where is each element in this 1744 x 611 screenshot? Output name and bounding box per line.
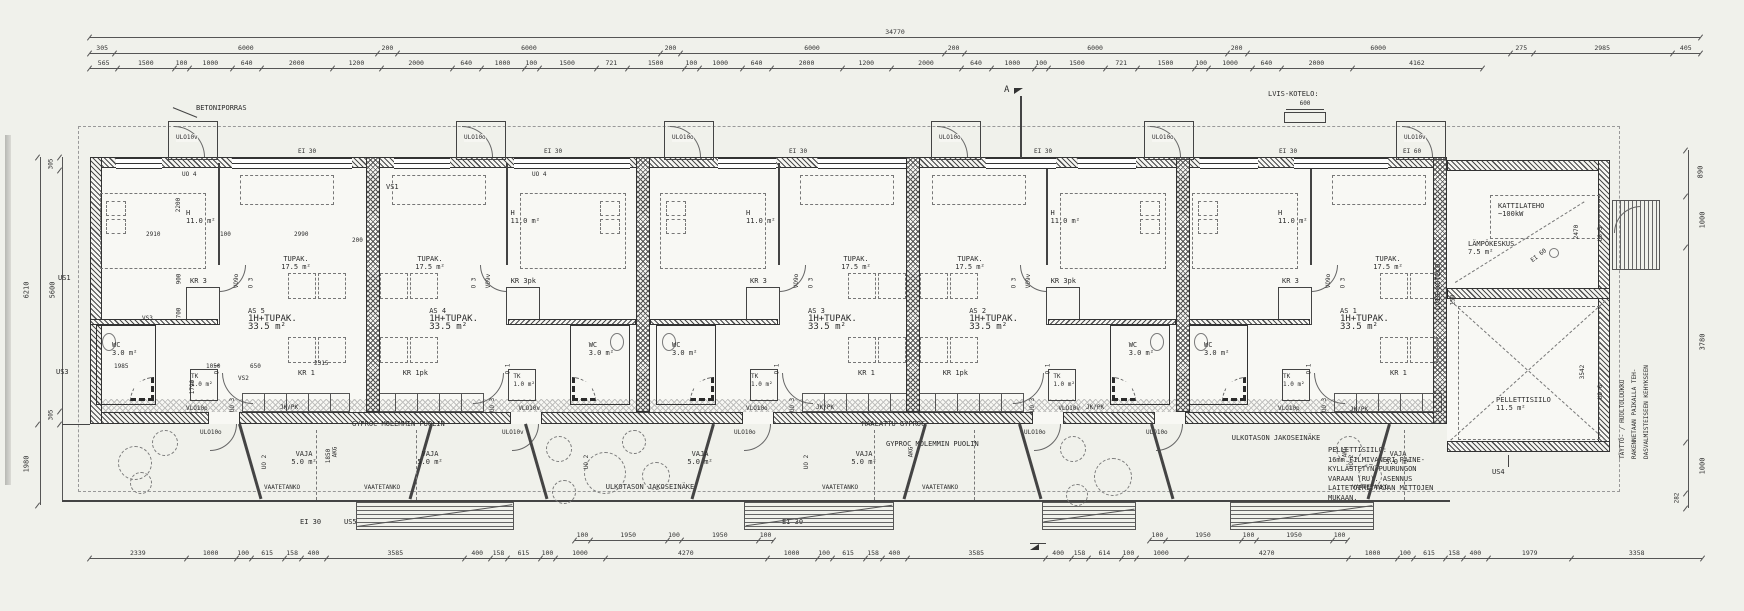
wc-area: 3.0 m² [1204,349,1229,357]
partition-wall [1310,163,1312,265]
dimension-value: 158 [490,549,507,558]
bottom-door-opening [208,412,240,424]
dimension-value: 2000 [891,59,962,68]
akg-label: AKG [331,447,339,458]
window [394,158,450,169]
apartment-id-block: AS 5 1H+TUPAK. 33.5 m² [248,307,297,331]
table-furniture [410,273,438,299]
pillow [106,201,126,216]
bedroom-door-label: VO9v [485,274,493,288]
dim-1985: 1985 [114,363,128,371]
living-area: 17.5 m² [955,263,985,271]
tick [35,502,40,508]
living-name: TUPAK. [1375,255,1400,263]
us3-label: US3 [56,368,69,376]
jk-pk-label: JK/PK [1086,404,1104,412]
living-area: 17.5 m² [1373,263,1403,271]
dimension-value: 200 [1227,44,1247,53]
bottom-door-label: ULO10o [200,429,222,437]
terrace-table [546,436,572,462]
bedroom-door-label: VO9v [1025,274,1033,288]
dimension-value: 615 [507,549,540,558]
vs2-label: VS2 [238,375,249,383]
vs3-label: VS3 [142,315,153,323]
window [1078,158,1136,169]
wc-name: WC [672,341,680,349]
wc-name: WC [589,341,597,349]
bottom-door-label: ULO10o [734,429,756,437]
dim-900: 900 [175,274,183,285]
exterior-stair [356,502,514,530]
betoniporras-leader [173,107,197,118]
left-dim-lower: 1980 [22,456,30,473]
dimension-value: 721 [596,59,628,68]
gyproc-painted-label: MAALATTU GYPROC [862,420,925,428]
bottom-door-opening [742,412,774,424]
window [514,158,630,169]
vaatetanko-rail-line [1404,430,1405,500]
terrace-table [552,480,576,504]
door-size-o3: O 3 [1339,278,1347,289]
dimension-value: 1500 [117,59,174,68]
tk-name: TK [513,373,520,380]
living-area: 17.5 m² [841,263,871,271]
uo3-label: UO 3 [489,398,497,412]
bedroom-label: H11.0 m² [186,209,216,225]
dimension-value: 158 [865,549,882,558]
dimension-value: 1000 [481,59,524,68]
wc-name: WC [1129,341,1137,349]
partition-label-2: ULKOTASON JAKOSEINÄKE [1196,434,1356,442]
dimension-value: 1950 [590,531,667,540]
bedroom-label: H11.0 m² [510,209,540,225]
dimension-value: 4162 [1352,59,1482,68]
dim-row-terrace-2: 10019501001950100 [1150,530,1347,541]
dimension-value: 200 [377,44,397,53]
exterior-stair [1042,502,1136,530]
tk-label: TK1.0 m² [1283,373,1305,389]
us5-label: US5 [344,518,357,526]
ei30-top-label: EI 30 [543,148,563,156]
tk-label: TK1.0 m² [751,373,773,389]
sofa-furniture [1332,175,1426,205]
left-dim-total: 6210 [22,282,30,299]
dimension-value: 614 [1088,549,1121,558]
sofa-furniture [240,175,334,205]
boiler-area: 7.5 m² [1468,248,1493,256]
gyproc-label-2: GYPROC MOLEMMIN PUOLIN [886,440,979,448]
dimension-value: 1000 [1136,549,1186,558]
section-line-top [1020,96,1022,158]
boiler-symbol [1549,248,1559,258]
terrace-table [130,472,152,494]
us1-label: US1 [58,274,71,282]
window [818,158,906,169]
dim-2200: 2200 [175,198,183,212]
bedroom-door-label: VO9o [233,274,241,288]
kitchen-counter [376,393,484,412]
partition-wall [507,163,509,265]
pillow [1140,201,1160,216]
table-furniture [288,273,316,299]
dimension-value: 6000 [964,44,1227,53]
dimension-value: 100 [174,59,189,68]
bedroom-label: H11.0 m² [1050,209,1080,225]
sofa-furniture [800,175,894,205]
apartment-area: 33.5 m² [429,322,467,332]
apartment-id-block: AS 1 1H+TUPAK. 33.5 m² [1340,307,1389,331]
jk-pk-label: JK/PK [1350,406,1368,414]
bottom-door-opening [1154,412,1186,424]
section-mark-top: A [1004,86,1009,94]
dimension-value: 305 [90,44,114,53]
dim-row-bottom: 2339100010061515840035854001586151001000… [90,547,1702,559]
annex-dim-3542: 3542 [1579,365,1587,379]
bottom-door-label: ULO10o [1146,429,1168,437]
wc-label: WC3.0 m² [1129,341,1154,357]
dimension-value: 640 [232,59,261,68]
left-dim-line-outer [40,157,41,505]
uo2-label: UO 2 [803,455,811,469]
wc-label: WC3.0 m² [112,341,137,357]
dimension-value: 100 [817,549,832,558]
dimension-value: 200 [944,44,964,53]
vaja-area: 5.0 m² [851,458,876,466]
table-furniture [920,273,948,299]
apartment-area: 33.5 m² [1340,322,1378,332]
dim-row-modules: 3056000200600020060002006000200600027529… [90,42,1700,54]
dimension-value: 100 [1034,59,1049,68]
dimension-value: 3585 [326,549,464,558]
terrace-edge-left [62,424,63,501]
jk-pk-label: JK/PK [280,404,298,412]
dimension-value: 1000 [1348,549,1398,558]
bedroom-area: 11.0 m² [510,217,540,225]
dimension-value: 1200 [332,59,381,68]
hatch-note-line-3: DASVALMISTEISEEN KEHYKSEEN [1643,309,1651,459]
party-wall [636,157,650,412]
apartment-id-block: AS 3 1H+TUPAK. 33.5 m² [808,307,857,331]
tk-area: 1.0 m² [1283,381,1305,388]
hatch-note-line-1: TÄYTTÖ- / HUOLTOLUUKKU [1619,309,1627,459]
lvis-kotelo-label: LVIS-KOTELO: [1268,90,1319,98]
table-furniture [878,337,906,363]
bedroom-name: H [1278,209,1282,217]
dimension-value: 100 [684,59,699,68]
dimension-value: 640 [452,59,481,68]
wc-name: WC [112,341,120,349]
living-label: TUPAK.17.5 m² [940,255,1000,271]
uo3-label: UO 3 [789,398,797,412]
table-furniture [288,337,316,363]
bedroom-area: 11.0 m² [1050,217,1080,225]
window [116,158,162,169]
dimension-value: 100 [575,531,590,540]
dimension-value: 100 [1150,531,1165,540]
dim-1050: 1050 [206,363,220,371]
vaatetanko-rail-line [416,430,417,500]
dimension-value: 100 [758,531,773,540]
closet-bottom-label: KR 1pk [943,369,968,377]
dimension-value: 6000 [1247,44,1510,53]
party-wall [1176,157,1190,412]
exterior-stair [1230,502,1374,530]
left-dim-305-top: 305 [47,159,55,170]
terrace-table [1060,436,1086,462]
wc-area: 3.0 m² [1129,349,1154,357]
dim-100: 100 [220,231,231,239]
bottom-door-opening [510,412,542,424]
dimension-value: 200 [660,44,680,53]
dimension-value: 1200 [842,59,891,68]
vaja-area: 5.0 m² [1385,458,1410,466]
vaja-label: VAJA5.0 m² [1376,450,1420,466]
pillow [600,219,620,234]
dimension-value: 1000 [186,549,236,558]
door-size-o3: O 3 [471,278,479,289]
table-furniture [380,273,408,299]
dimension-value: 275 [1510,44,1533,53]
dimension-value: 158 [284,549,301,558]
bedroom-area: 11.0 m² [186,217,216,225]
kattilateho-value: ~100kW [1498,210,1523,218]
table-furniture [878,273,906,299]
silo-label: PELLETTISIILO11.5 m² [1494,396,1553,412]
akg-label: AKG [1341,447,1349,458]
dim-2315: 2315 [314,360,328,368]
table-furniture [410,337,438,363]
dimension-value: 640 [961,59,990,68]
living-label: TUPAK.17.5 m² [1358,255,1418,271]
dimension-value: 4270 [605,549,767,558]
porch-door-label: ULO10o [464,134,486,142]
right-dim-3780: 3780 [1698,334,1706,351]
door-size-o3: O 3 [807,278,815,289]
pillow [1198,201,1218,216]
vaja-area: 5.0 m² [687,458,712,466]
terrace-table [642,462,670,490]
left-dim-line-inner [62,157,63,424]
dimension-value: 2000 [381,59,452,68]
dim-2990: 2990 [294,231,308,239]
vaja-label: VAJA5.0 m² [842,450,886,466]
betoniporras-label: BETONIPORRAS [196,104,247,112]
inner-door-label: VLO10p [1278,405,1300,413]
us4-label: US4 [1492,468,1505,476]
vaja-name: VAJA [422,450,439,458]
dimension-value: 100 [524,59,539,68]
bedroom-name: H [186,209,190,217]
tk-name: TK [751,373,758,380]
stair-diagonal [746,505,893,527]
living-area: 17.5 m² [281,263,311,271]
window [718,158,776,169]
uo5-label: UO 5 [1597,227,1605,241]
dimension-value: 100 [1241,531,1256,540]
living-label: TUPAK.17.5 m² [400,255,460,271]
terrace-table [1094,458,1132,496]
ei30-bottom-1: EI 30 [300,518,321,526]
partition-wall [1047,163,1049,265]
uo3-label: UO 3 [1321,398,1329,412]
dimension-value: 1000 [1208,59,1251,68]
wc-label: WC3.0 m² [672,341,697,357]
dimension-value: 2985 [1533,44,1672,53]
kitchen-counter [916,393,1024,412]
stair-diagonal [1232,505,1373,526]
dimension-value: 100 [1121,549,1136,558]
living-label: TUPAK.17.5 m² [826,255,886,271]
terrace-table [622,430,646,454]
bedroom-name: H [510,209,514,217]
tk-area: 1.0 m² [513,381,535,388]
dimension-value: 6000 [680,44,943,53]
closet-bottom-label: KR 1pk [403,369,428,377]
pillow [666,219,686,234]
dimension-value: 1000 [189,59,232,68]
dimension-value: 100 [1194,59,1209,68]
annex-wall-mid [1447,288,1610,299]
door-size-o1: O 1 [505,364,513,375]
vaja-name: VAJA [856,450,873,458]
boiler-power-label: KATTILATEHO~100kW [1498,202,1544,218]
silo-name: PELLETTISIILO [1496,396,1551,404]
dimension-value: 2000 [771,59,842,68]
section-flag-bottom [1030,544,1039,550]
vaatetanko-label: VAATETANKO [822,484,858,492]
dimension-value: 1500 [1137,59,1194,68]
dimension-value: 640 [742,59,771,68]
dimension-value: 1000 [699,59,742,68]
table-furniture [318,273,346,299]
party-wall [906,157,920,412]
wc-area: 3.0 m² [672,349,697,357]
window [986,158,1056,169]
interior-wall [508,319,636,325]
closet-top-label: KR 3 [750,277,767,285]
vaatetanko-label: VAATETANKO [264,484,300,492]
vaja-name: VAJA [296,450,313,458]
right-dim-1000a: 1000 [1698,212,1706,229]
table-furniture [1410,337,1438,363]
vaatetanko-rail-line [874,430,875,500]
lvis-kotelo-dim: 600 [1290,100,1320,108]
dimension-value: 100 [667,531,682,540]
vaatetanko-rail-line [316,430,317,500]
dim-650: 650 [250,363,261,371]
ei30-top-label: EI 30 [1033,148,1053,156]
section-flag-top [1014,88,1023,94]
dimension-value: 100 [1397,549,1412,558]
lvis-kotelo-box [1284,112,1326,123]
closet-top-label: KR 3 [1282,277,1299,285]
apartment: H11.0 m² TUPAK.17.5 m² AS 5 1H+TUPAK. 33… [90,157,366,412]
apartment-area: 33.5 m² [969,322,1007,332]
porch-door-label: ULO10o [1152,134,1174,142]
vaatetanko-label: VAATETANKO [922,484,958,492]
table-furniture [950,337,978,363]
dimension-value: 1950 [1256,531,1332,540]
bedroom-label: H11.0 m² [1278,209,1308,225]
right-dim-line [1688,150,1689,508]
living-label: TUPAK.17.5 m² [266,255,326,271]
uo6-label: UO 6 [1597,385,1605,399]
dimension-value: 2000 [261,59,332,68]
vaja-label: VAJA5.0 m² [678,450,722,466]
stair-diagonal [1043,509,1134,523]
lvis-kotelo-dimline [1286,109,1324,110]
partition-wall [218,163,220,265]
dimension-value: 2000 [1281,59,1352,68]
dimension-value: 1000 [767,549,817,558]
dimension-value: 4270 [1186,549,1348,558]
uo3-label: UO 3 [229,398,237,412]
living-name: TUPAK. [283,255,308,263]
dimension-value: 1500 [1048,59,1105,68]
wc-name: WC [1204,341,1212,349]
annex-dim-2470: 2470 [1573,225,1581,239]
closet-bottom-label: KR 1 [858,369,875,377]
dimension-value: 158 [1445,549,1462,558]
dimension-value: 400 [301,549,326,558]
interior-wall [1048,319,1176,325]
living-name: TUPAK. [843,255,868,263]
vaja-label: VAJA5.0 m² [282,450,326,466]
right-dim-1000b: 1000 [1698,458,1706,475]
dimension-value: 1000 [991,59,1034,68]
scan-smudge [5,135,11,485]
uo2-label: UO 2 [261,455,269,469]
table-furniture [1380,337,1408,363]
us4-leader [1508,455,1509,467]
annex-wall-top [1447,160,1610,171]
table-furniture [1380,273,1408,299]
inner-door-label: VLO10p [186,405,208,413]
tk-label: TK1.0 m² [513,373,535,389]
living-name: TUPAK. [417,255,442,263]
annex-wall-bottom [1447,441,1610,452]
dimension-value: 34770 [90,28,1700,37]
bedroom-door-label: VO9o [793,274,801,288]
pillow [1140,219,1160,234]
dim-700: 700 [175,308,183,319]
vaja-name: VAJA [692,450,709,458]
right-dim-282: 282 [1673,493,1681,504]
table-furniture [950,273,978,299]
sofa-furniture [932,175,1026,205]
jk-pk-label: JK/PK [816,404,834,412]
dimension-value: 400 [882,549,907,558]
window [232,158,352,169]
dimension-value: 3585 [907,549,1045,558]
apartment: H11.0 m² TUPAK.17.5 m² AS 4 1H+TUPAK. 33… [380,157,636,412]
dimension-value: 615 [832,549,865,558]
dim-row-terrace-1: 10019501001950100 [575,530,773,541]
closet-bottom-label: KR 1 [1390,369,1407,377]
apartment-id-block: AS 2 1H+TUPAK. 33.5 m² [969,307,1018,331]
dimension-value: 721 [1105,59,1137,68]
uo2-label: UO 2 [1348,455,1356,469]
dimension-value: 640 [1252,59,1281,68]
dimension-value: 6000 [397,44,660,53]
partition-wall [778,163,780,265]
ei30-top-label: EI 30 [788,148,808,156]
tick [1683,505,1688,511]
bottom-door-label: ULO10v [502,429,524,437]
pillow [666,201,686,216]
apartment-area: 33.5 m² [248,322,286,332]
dimension-value: 2339 [90,549,186,558]
